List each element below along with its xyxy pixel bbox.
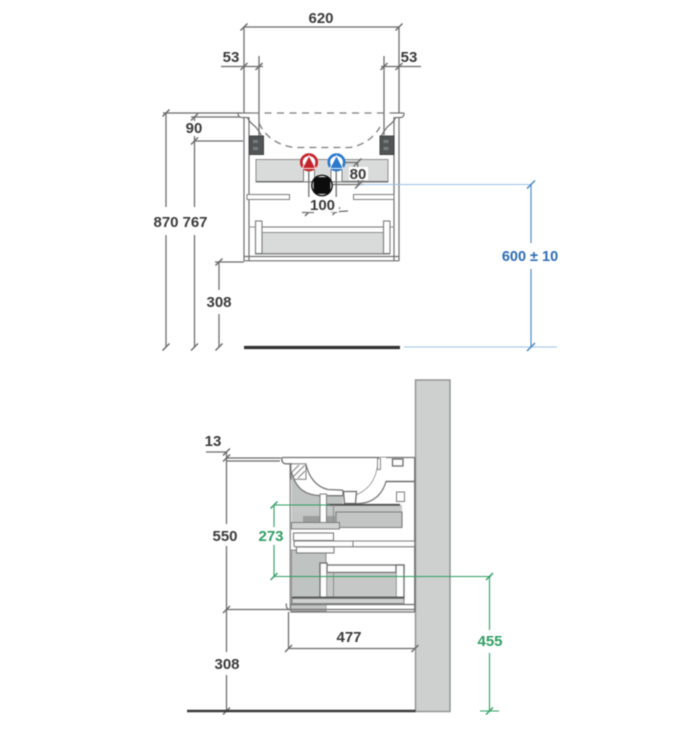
svg-text:273: 273 — [258, 528, 283, 545]
svg-text:80: 80 — [350, 166, 367, 183]
svg-text:13: 13 — [205, 433, 222, 450]
svg-text:308: 308 — [214, 656, 239, 673]
svg-text:53: 53 — [401, 49, 418, 66]
svg-text:455: 455 — [477, 633, 502, 650]
svg-text:870: 870 — [153, 214, 178, 231]
svg-text:477: 477 — [336, 629, 361, 646]
svg-text:600 ± 10: 600 ± 10 — [502, 249, 558, 265]
svg-text:53: 53 — [223, 49, 240, 66]
svg-text:620: 620 — [308, 10, 333, 27]
svg-text:100: 100 — [310, 197, 335, 214]
svg-text:90: 90 — [186, 120, 203, 137]
svg-text:550: 550 — [212, 528, 237, 545]
svg-text:767: 767 — [182, 214, 207, 231]
svg-text:308: 308 — [206, 294, 231, 311]
